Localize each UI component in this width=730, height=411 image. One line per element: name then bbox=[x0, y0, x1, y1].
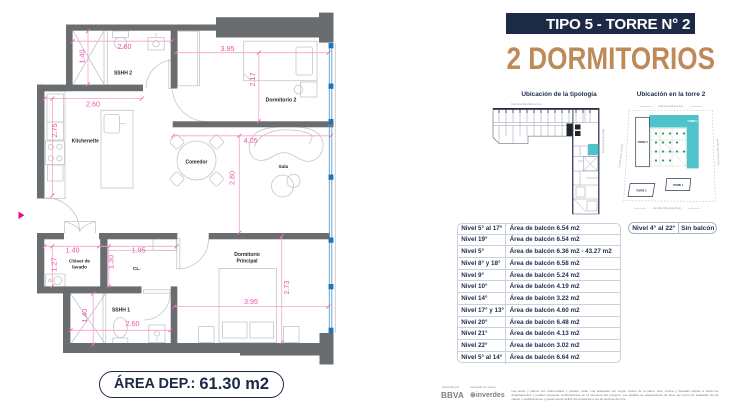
svg-text:SSHH 1: SSHH 1 bbox=[112, 308, 130, 314]
svg-text:1.40: 1.40 bbox=[80, 309, 89, 323]
svg-text:1.95: 1.95 bbox=[132, 246, 146, 255]
svg-text:1.30: 1.30 bbox=[107, 255, 116, 269]
svg-text:TORRE 5: TORRE 5 bbox=[636, 190, 647, 193]
svg-text:Maria Garcia Bara Aylla: Maria Garcia Bara Aylla bbox=[602, 129, 605, 154]
svg-text:2.73: 2.73 bbox=[282, 281, 291, 295]
svg-text:3.95: 3.95 bbox=[244, 297, 258, 306]
svg-text:Calle Gran Bara de Ame: Calle Gran Bara de Ame bbox=[659, 105, 685, 108]
svg-text:lavado: lavado bbox=[72, 265, 87, 270]
svg-text:2.60: 2.60 bbox=[86, 99, 100, 108]
svg-text:Kitchenette: Kitchenette bbox=[72, 139, 99, 145]
svg-text:2.80: 2.80 bbox=[227, 171, 236, 185]
svg-text:TORRE 3: TORRE 3 bbox=[637, 141, 648, 144]
svg-text:Principal: Principal bbox=[236, 258, 258, 264]
svg-text:Avenida Bolton General: Avenida Bolton General bbox=[618, 143, 624, 168]
svg-text:3.95: 3.95 bbox=[221, 44, 235, 53]
svg-text:Jean Bale Barcelona (Anap): Jean Bale Barcelona (Anap) bbox=[653, 207, 682, 210]
svg-text:Calle Gran Bans Bara de Ame: Calle Gran Bans Bara de Ame bbox=[511, 103, 542, 106]
svg-text:Comedor: Comedor bbox=[186, 160, 208, 166]
svg-text:Agustin Iquitos Maya Aylla: Agustin Iquitos Maya Aylla bbox=[716, 139, 720, 167]
svg-text:2 DORMITORIOS: 2 DORMITORIOS bbox=[507, 40, 716, 70]
svg-text:2.17: 2.17 bbox=[248, 73, 257, 87]
svg-text:Clóset de: Clóset de bbox=[69, 259, 90, 264]
svg-text:1.27: 1.27 bbox=[49, 258, 58, 272]
svg-text:Sala: Sala bbox=[278, 164, 288, 169]
svg-text:2.75: 2.75 bbox=[50, 124, 59, 138]
svg-text:2.60: 2.60 bbox=[126, 319, 140, 328]
svg-text:Dormitorio 2: Dormitorio 2 bbox=[266, 98, 297, 104]
svg-text:TORRE 2: TORRE 2 bbox=[687, 120, 698, 123]
svg-text:1.40: 1.40 bbox=[78, 50, 87, 64]
svg-text:TIPO 5 - TORRE N° 2: TIPO 5 - TORRE N° 2 bbox=[546, 16, 690, 33]
svg-text:CL.: CL. bbox=[133, 266, 141, 272]
svg-text:2.60: 2.60 bbox=[118, 42, 132, 51]
svg-text:Dormitorio: Dormitorio bbox=[234, 252, 260, 258]
svg-text:SSHH 2: SSHH 2 bbox=[114, 70, 132, 76]
svg-text:4.05: 4.05 bbox=[244, 136, 258, 145]
svg-text:TORRE 1: TORRE 1 bbox=[673, 184, 684, 187]
svg-text:1.40: 1.40 bbox=[66, 246, 80, 255]
